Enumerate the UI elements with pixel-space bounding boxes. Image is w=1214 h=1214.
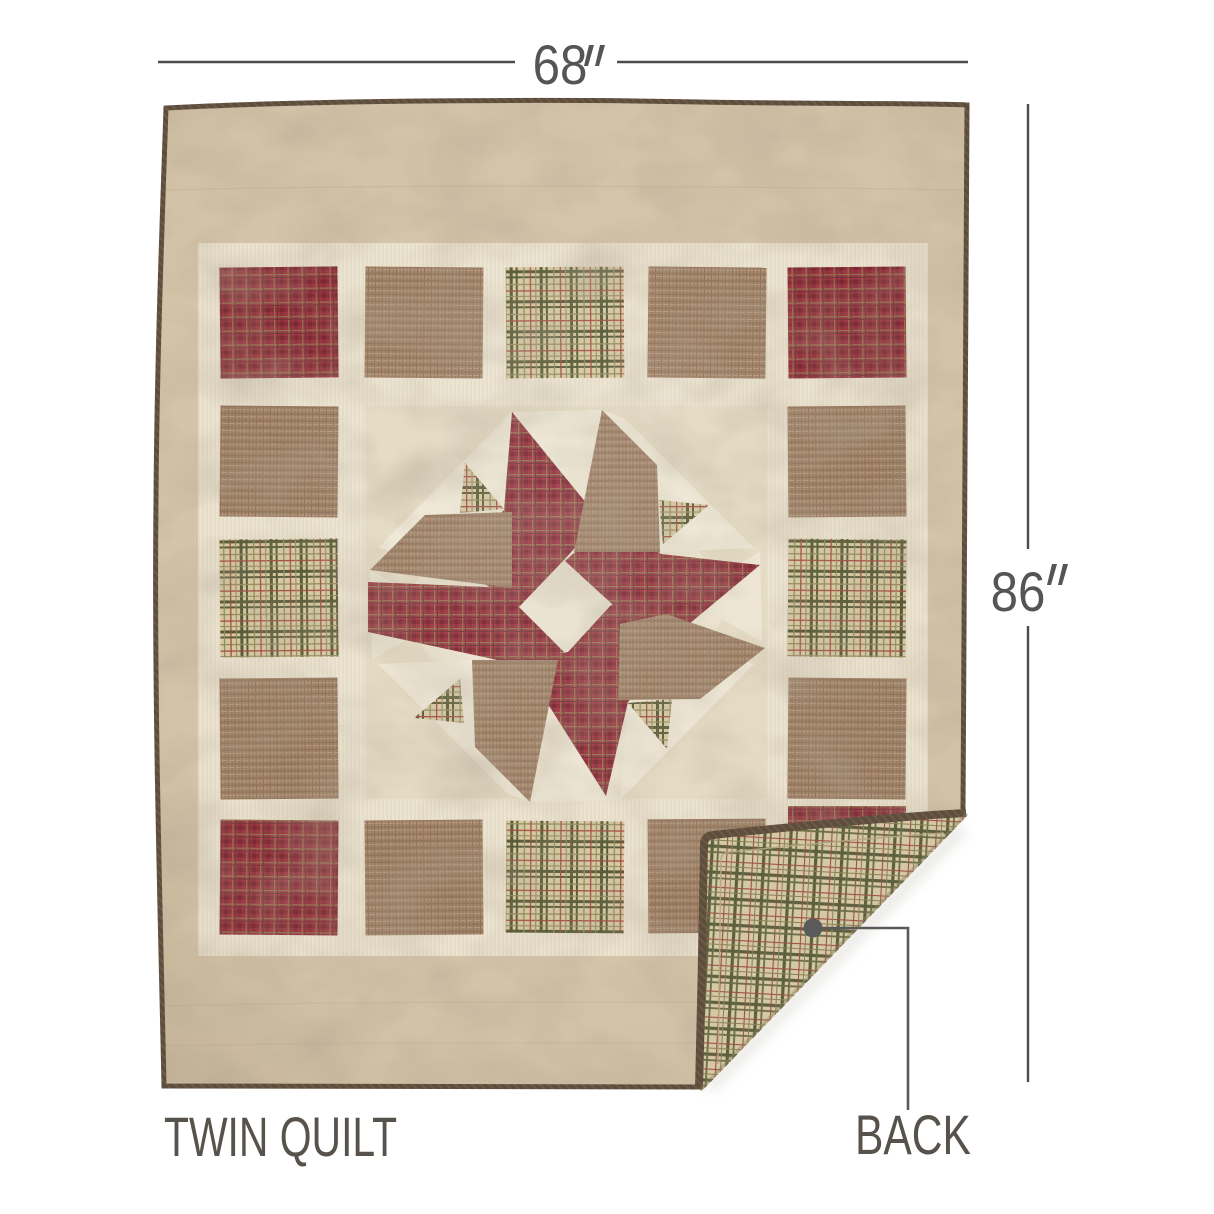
svg-text:68: 68 (533, 34, 588, 97)
svg-text:86: 86 (991, 561, 1046, 624)
svg-text:BACK: BACK (855, 1103, 971, 1166)
svg-text:TWIN QUILT: TWIN QUILT (164, 1107, 397, 1169)
